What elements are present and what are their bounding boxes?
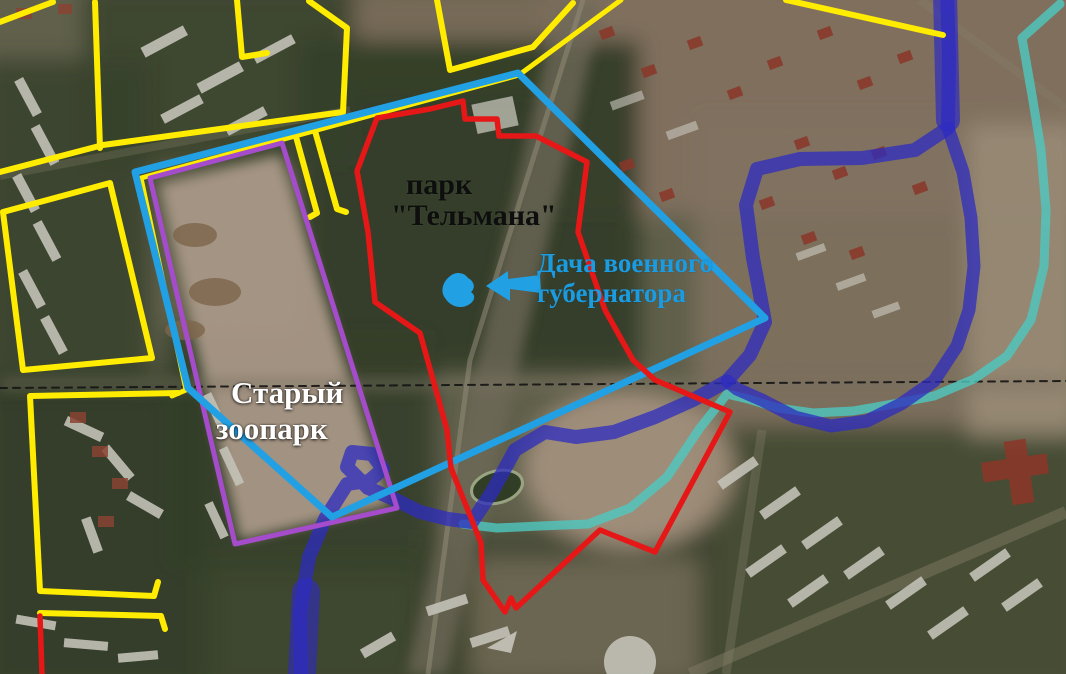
label-old-zoo-line2: зоопарк (216, 413, 328, 444)
label-dacha-line1: Дача военного (537, 250, 713, 277)
satellite-map[interactable] (0, 0, 1066, 674)
label-old-zoo-line1: Старый (231, 377, 343, 408)
river-bottom-wide (302, 592, 306, 674)
map-canvas[interactable]: парк "Тельмана" Дача военного губернатор… (0, 0, 1066, 674)
label-park-telmana-line1: парк (406, 170, 472, 200)
label-park-telmana-line2: "Тельмана" (391, 201, 557, 231)
satellite-noise-texture (0, 0, 1066, 674)
red-line-bottomleft (40, 616, 42, 674)
label-dacha-line2: губернатора (537, 280, 686, 307)
